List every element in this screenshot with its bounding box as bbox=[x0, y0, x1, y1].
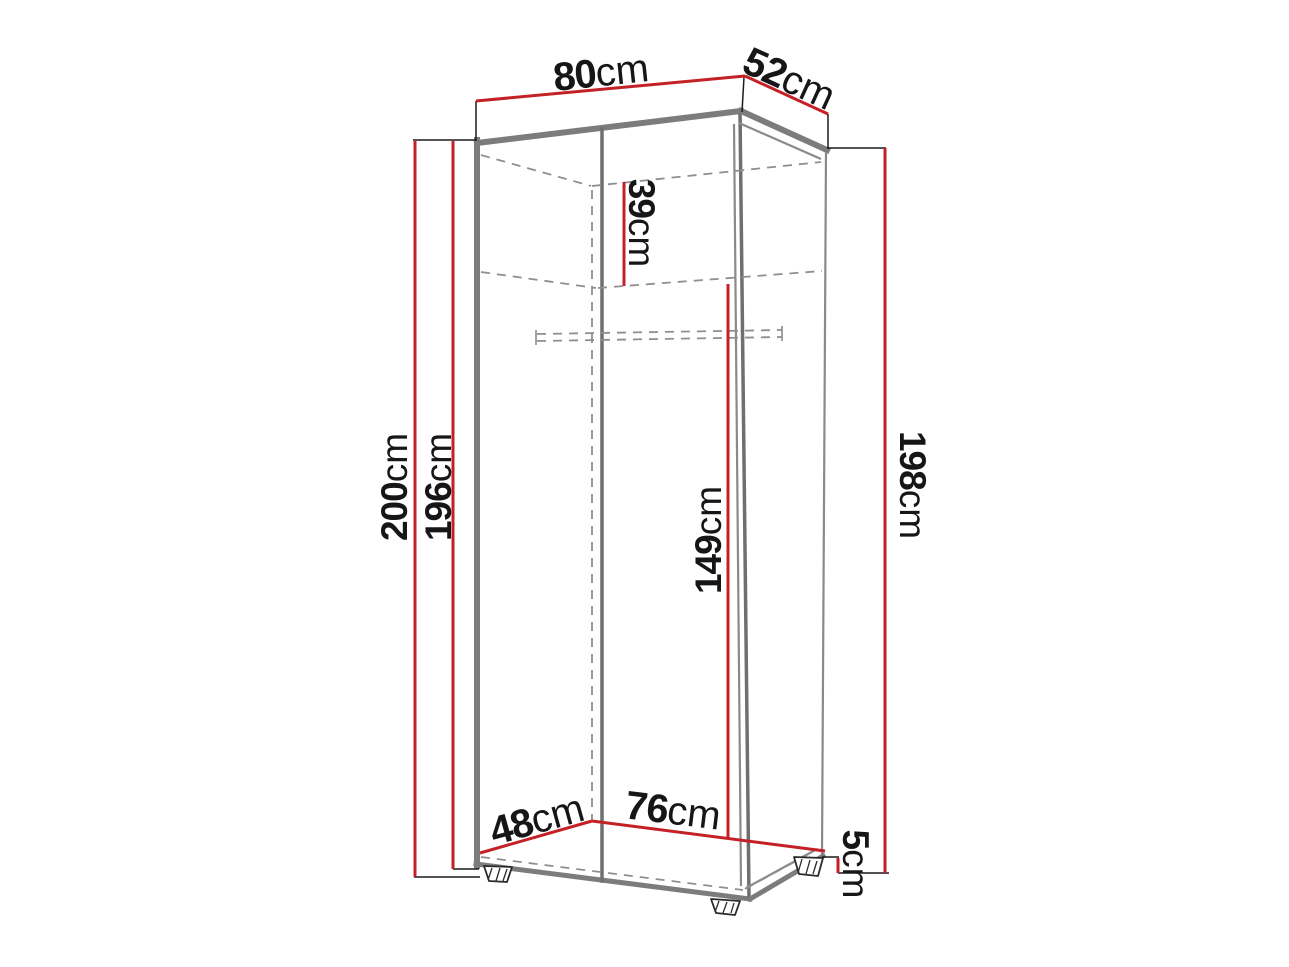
dim-label-feet-height: 5cm bbox=[836, 830, 877, 899]
dim-label-top-depth: 52cm bbox=[736, 39, 841, 119]
diagram-canvas: 80cm 52cm 200cm 196cm 198cm 39cm 149cm 4… bbox=[0, 0, 1289, 967]
dim-label-bottom-width: 76cm bbox=[623, 783, 723, 838]
shelf-back-hidden-edge bbox=[598, 271, 822, 288]
dim-label-top-compartment: 39cm bbox=[622, 179, 663, 267]
hanging-rail-top-edge bbox=[537, 330, 782, 334]
floor-front-hidden-edge bbox=[481, 857, 743, 890]
dimension-labels: 80cm 52cm 200cm 196cm 198cm 39cm 149cm 4… bbox=[374, 39, 934, 898]
bottom-front-edge bbox=[476, 864, 750, 899]
dim-label-inner-height: 149cm bbox=[688, 486, 729, 594]
wardrobe-dimension-diagram: 80cm 52cm 200cm 196cm 198cm 39cm 149cm 4… bbox=[0, 0, 1289, 967]
dim-label-height-left-outer: 200cm bbox=[374, 433, 415, 541]
shelf-left-hidden-edge bbox=[481, 272, 596, 288]
dim-label-height-left-inner: 196cm bbox=[418, 433, 459, 541]
top-front-edge bbox=[477, 111, 741, 143]
top-left-depth-hidden-edge bbox=[481, 155, 591, 186]
hanging-rail-bottom-edge bbox=[537, 337, 782, 341]
right-front-corner-edge bbox=[740, 112, 749, 897]
back-right-edge bbox=[822, 152, 826, 855]
dim-label-bottom-depth: 48cm bbox=[485, 786, 589, 854]
dim-label-height-right: 198cm bbox=[893, 431, 934, 539]
dim-label-top-width: 80cm bbox=[551, 46, 651, 100]
